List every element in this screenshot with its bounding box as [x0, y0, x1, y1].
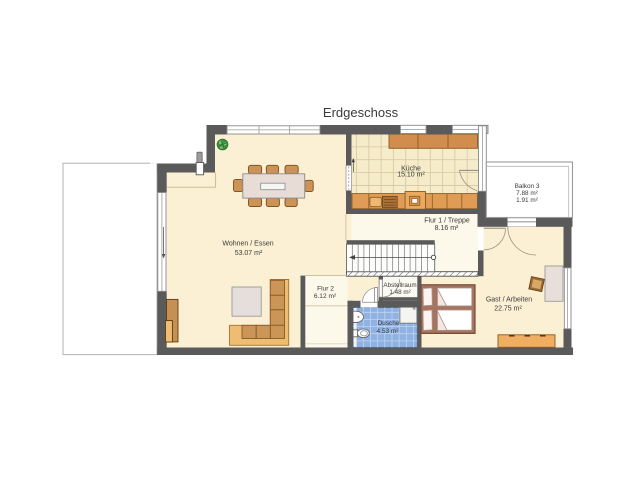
svg-text:1.91 m²: 1.91 m² [516, 197, 538, 204]
svg-text:7.88 m²: 7.88 m² [516, 190, 538, 197]
svg-text:Gast / Arbeiten: Gast / Arbeiten [486, 297, 532, 304]
svg-text:Wohnen / Essen: Wohnen / Essen [222, 240, 273, 247]
svg-text:22.75 m²: 22.75 m² [494, 306, 522, 313]
svg-text:1.48 m²: 1.48 m² [389, 289, 410, 296]
svg-text:Abstellraum: Abstellraum [383, 282, 416, 289]
svg-text:8.16 m²: 8.16 m² [435, 225, 459, 232]
svg-text:Dusche: Dusche [377, 320, 399, 327]
svg-text:Flur 1 / Treppe: Flur 1 / Treppe [424, 218, 470, 225]
svg-text:Erdgeschoss: Erdgeschoss [323, 105, 399, 120]
svg-text:6.12 m²: 6.12 m² [314, 293, 337, 300]
svg-text:4.53 m²: 4.53 m² [376, 328, 399, 335]
svg-text:Flur 2: Flur 2 [317, 285, 334, 292]
svg-text:15.10 m²: 15.10 m² [397, 172, 425, 179]
svg-text:Balkon 3: Balkon 3 [515, 183, 540, 190]
svg-text:53.07 m²: 53.07 m² [235, 250, 263, 257]
